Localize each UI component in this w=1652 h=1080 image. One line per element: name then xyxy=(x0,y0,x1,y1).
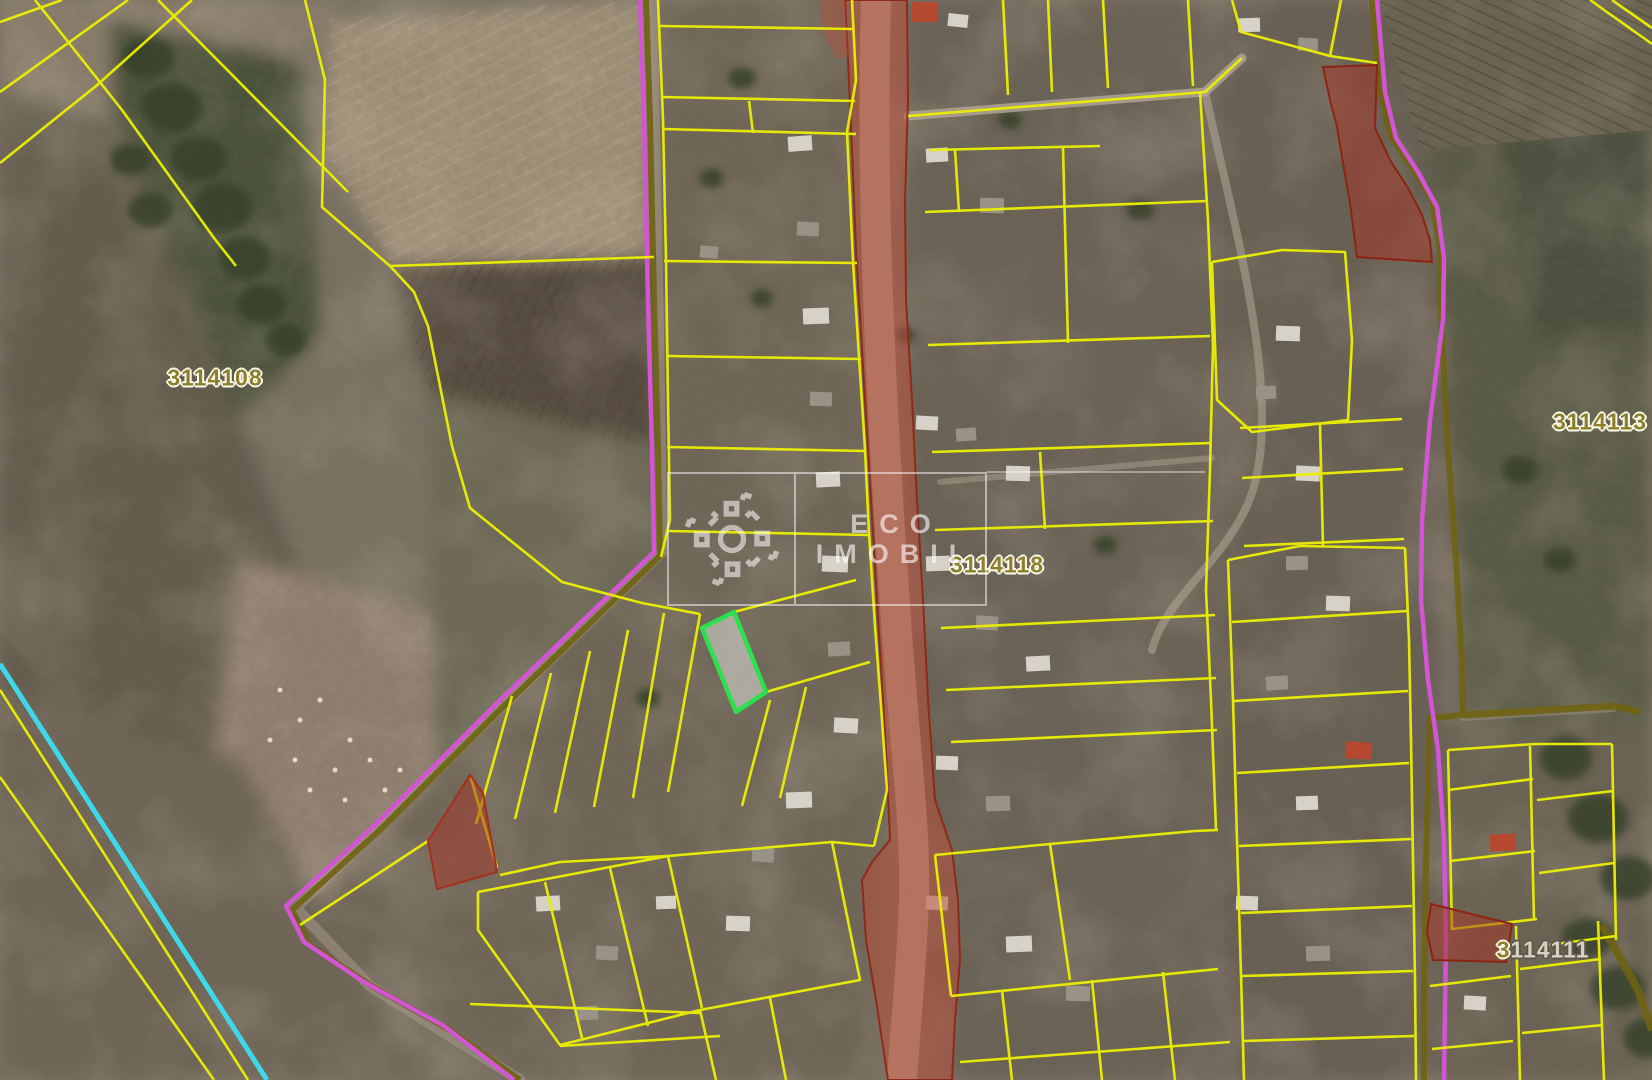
cadastral-label-3114111: 3114111 xyxy=(1497,937,1590,964)
watermark-line2: IMOBIL xyxy=(805,540,977,568)
eco-imobil-logo-icon xyxy=(669,474,794,604)
watermark-frame-line xyxy=(987,471,1205,473)
cadastral-label-3114111-prefix: 3 xyxy=(1497,937,1511,963)
cadastral-label-3114113: 3114113 xyxy=(1553,409,1647,436)
watermark-line1: ECO xyxy=(839,510,942,538)
map-canvas[interactable]: 3114108 3114113 3114118 3114111 xyxy=(0,0,1652,1080)
watermark: ECO IMOBIL xyxy=(667,472,987,606)
cadastral-label-3114108: 3114108 xyxy=(167,365,262,392)
watermark-text: ECO IMOBIL xyxy=(794,474,985,604)
cadastral-label-3114111-rest: 114111 xyxy=(1510,937,1589,963)
